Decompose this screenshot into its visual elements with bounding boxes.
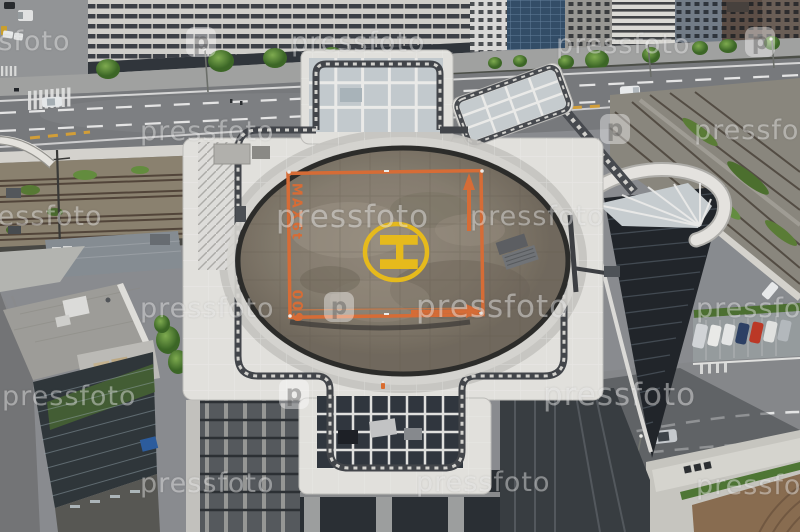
aerial-photo-scene: H MAX6t 600	[0, 0, 800, 532]
aerial-photo-stage: H MAX6t 600 pressfoto p pressfot	[0, 0, 800, 532]
vignette	[0, 0, 800, 532]
